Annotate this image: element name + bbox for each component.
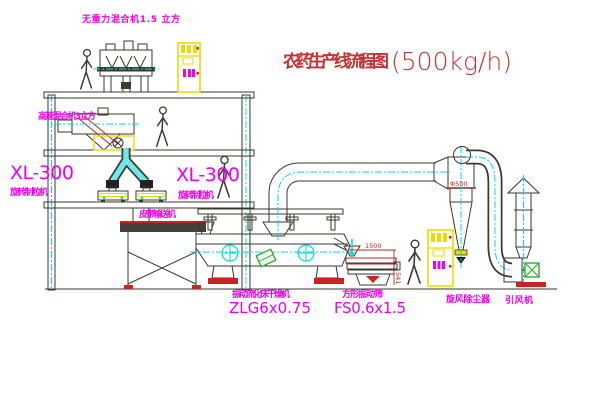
label-fs-model: FS0.6x1.5 [334, 299, 406, 317]
cad-flow-diagram: 农药生产线流程图 (500kg/h) 无重力混合机1.5 立方 高速混合机3立方… [0, 0, 600, 403]
person-figure [81, 49, 92, 88]
person-figure [157, 107, 168, 146]
granulator-unit-right [136, 180, 166, 203]
gravity-mixer-machine [93, 41, 159, 92]
dim-sieve-length: 1500 [365, 242, 382, 250]
dryer-exhaust-duct [263, 163, 450, 240]
fluid-bed-dryer-machine [190, 209, 352, 284]
diagram-capacity: (500kg/h) [391, 47, 512, 76]
label-xl300-left: XL-300 [10, 162, 74, 184]
label-cyclone: 旋风除尘器 [445, 293, 491, 305]
y-feed-pipe [112, 148, 146, 182]
diagram-title: 农药生产线流程图 [282, 51, 389, 72]
diagram-drawing: 农药生产线流程图 (500kg/h) 无重力混合机1.5 立方 高速混合机3立方… [0, 0, 600, 403]
label-fan: 引风机 [505, 294, 533, 306]
control-cabinet-top [178, 43, 200, 92]
label-zlg-model: ZLG6x0.75 [229, 299, 311, 317]
label-gravity-mixer: 无重力混合机1.5 立方 [81, 13, 180, 25]
dim-sieve-height: 541 [394, 272, 402, 284]
label-granulator-mid: 旋转制粒机 [177, 189, 214, 201]
belt-conveyor-machine [120, 222, 206, 289]
label-granulator-left: 旋转制粒机 [9, 186, 48, 198]
label-high-speed-mixer: 高速混合机3立方 [38, 110, 96, 122]
label-belt-conveyor: 皮带输送机 [138, 208, 176, 220]
granulator-unit-left [98, 180, 128, 203]
dim-cyclone: Φ500 [450, 180, 468, 188]
label-xl300-mid: XL-300 [176, 164, 240, 186]
control-cabinet-dryer [428, 230, 453, 286]
person-figure [408, 240, 420, 284]
